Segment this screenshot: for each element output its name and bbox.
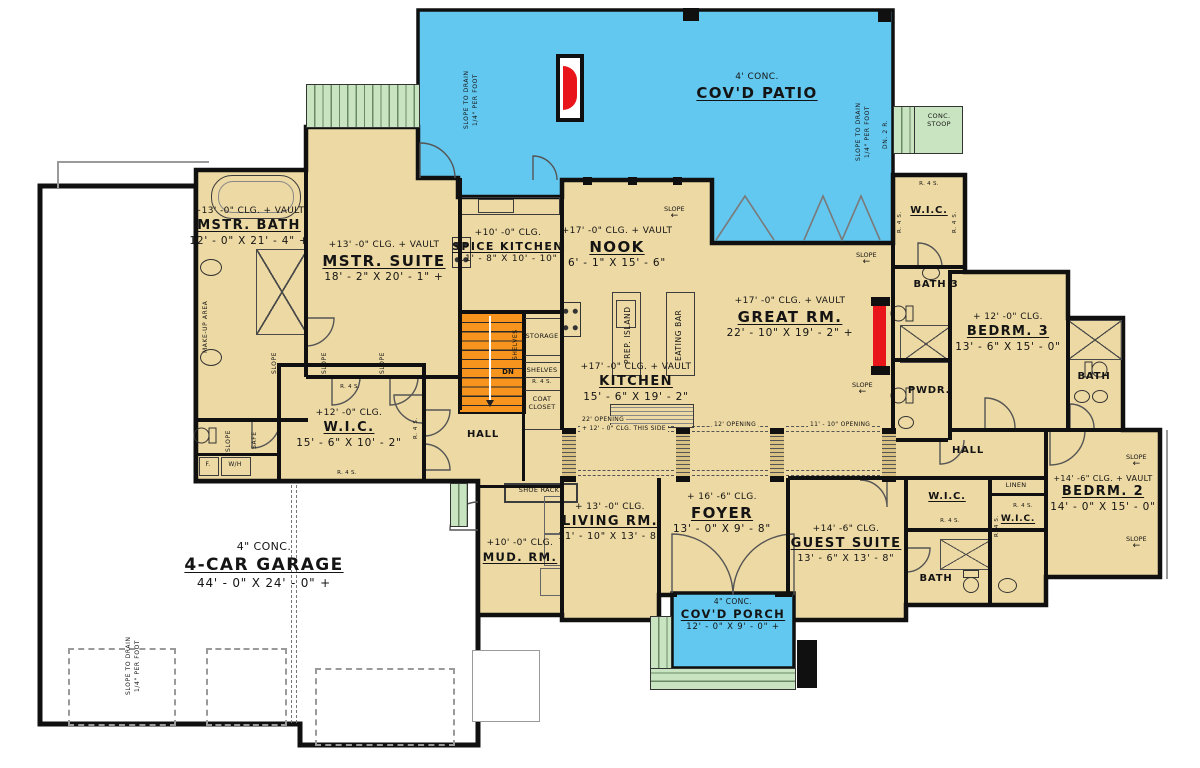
water-heater-label: W/H: [228, 461, 241, 469]
room-label-spice: +10' -0" CLG. SPICE KITCHEN 11' - 8" X 1…: [452, 228, 564, 266]
wall-guestwic-bottom: [906, 528, 1044, 532]
bathright-sink-2: [1092, 390, 1108, 403]
bedrm3-note: + 12' -0" CLG.: [955, 312, 1061, 324]
wic-master-note: +12' -0" CLG.: [296, 408, 402, 420]
great-rm-name: GREAT RM.: [727, 308, 854, 328]
hall-center-name: HALL: [467, 428, 499, 441]
slope-arrow-b2a: ←: [1126, 461, 1147, 468]
pwdr-name: PWDR.: [908, 384, 950, 397]
wall-bedrm3-west: [948, 272, 952, 440]
wall-wic-left: [277, 363, 281, 481]
closet-r4s-label: R. 4 S.: [532, 379, 552, 386]
column-post-2: [676, 428, 690, 482]
stairs-arrow-head: [486, 400, 494, 407]
linen-name: LINEN: [1006, 481, 1027, 489]
kitchen-note: +17' -0" CLG. + VAULT: [581, 362, 692, 374]
slope-drain-text-1: SLOPE TO DRAIN: [462, 60, 471, 140]
r4s-wic-tr-top: R. 4 S.: [919, 181, 939, 188]
furnace-label: F.: [206, 461, 211, 469]
room-label-pwdr: PWDR.: [908, 384, 950, 397]
slope-tick-1: SLOPE: [270, 350, 279, 376]
wall-bath-bottom: [196, 418, 308, 422]
r4s-wic-master-right: R. 4 S.: [412, 414, 420, 442]
safe-label: SAFE: [250, 424, 259, 456]
spice-sink: [478, 199, 514, 213]
garage-dims: 44' - 0" X 24' - 0" +: [184, 576, 343, 592]
slope-tick-3: SLOPE: [378, 350, 387, 376]
mstr-bath-dims: 12' - 0" X 21' - 4" +: [189, 235, 308, 249]
wall-mud-living: [560, 476, 564, 620]
living-rm-dims: 11' - 10" X 13' - 8": [558, 531, 662, 543]
wall-guestwic-east: [988, 478, 992, 605]
pwdr-sink: [898, 416, 914, 429]
wall-bedrm3-east: [1066, 272, 1070, 430]
nook-post-1: [583, 177, 592, 185]
patio-slope-note-right: SLOPE TO DRAIN 1/4" PER FOOT: [854, 92, 872, 172]
patio-name: COV'D PATIO: [696, 84, 817, 104]
wic-master-dims: 15' - 6" X 10' - 2": [296, 437, 402, 451]
foyer-name: FOYER: [673, 504, 771, 524]
guest-suite-note: +14' -6" CLG.: [791, 524, 902, 536]
nook-note: +17' -0" CLG. + VAULT: [562, 226, 673, 238]
wall-bathright-bottom: [1068, 428, 1123, 432]
per-foot-text-1: 1/4" PER FOOT: [471, 60, 480, 140]
garage-note: 4" CONC.: [184, 540, 343, 554]
room-label-guest-suite: +14' -6" CLG. GUEST SUITE 13' - 6" X 13'…: [791, 524, 902, 565]
column-post-3: [770, 428, 784, 482]
garage-door-2: [206, 648, 287, 726]
garage-side-stoop: [472, 650, 540, 722]
wall-suite-bath: [304, 170, 308, 377]
stoop-steps: [893, 106, 915, 154]
guest-suite-dims: 13' - 6" X 13' - 8": [791, 553, 902, 565]
greatrm-fireplace-cap-top: [871, 297, 890, 306]
stairs-dn-label: DN: [502, 368, 514, 377]
spice-dims: 11' - 8" X 10' - 10": [452, 254, 564, 266]
room-label-hall-center: HALL: [467, 428, 499, 441]
opening-note-clg: + 12' - 0" CLG. THIS SIDE: [580, 425, 668, 432]
guest-suite-name: GUEST SUITE: [791, 536, 902, 553]
r4s-wic-bedrm2: R. 4 S.: [1013, 503, 1033, 510]
living-rm-note: + 13' -0" CLG.: [558, 502, 662, 514]
room-label-bath-right: BATH: [1078, 370, 1111, 383]
patio-note: 4' CONC.: [696, 72, 817, 84]
guest-shower: [940, 539, 992, 570]
r4s-wic-tr-right: R. 4 S.: [951, 208, 959, 236]
wall-fwh-top: [196, 453, 278, 456]
bath-right-name: BATH: [1078, 370, 1111, 383]
eave-line-side: [57, 161, 59, 188]
floor-plan: 22' OPENING + 12' - 0" CLG. THIS SIDE 12…: [0, 0, 1200, 768]
garage-door-1: [68, 648, 176, 726]
nook-name: NOOK: [562, 238, 673, 258]
wall-wic-right: [422, 363, 426, 481]
per-foot-text-3: 1/4" PER FOOT: [133, 626, 142, 706]
makeup-area-text: MAKE-UP AREA: [201, 296, 210, 358]
mstr-bath-name: MSTR. BATH: [189, 218, 308, 235]
kitchen-dims: 15' - 6" X 19' - 2": [581, 391, 692, 405]
mstr-suite-dims: 18' - 2" X 20' - 1" +: [322, 271, 445, 285]
mud-rm-note: +10' -0" CLG.: [483, 538, 558, 550]
room-label-mstr-suite: +13' -0" CLG. + VAULT MSTR. SUITE 18' - …: [322, 240, 445, 285]
room-label-great-rm: +17' -0" CLG. + VAULT GREAT RM. 22' - 10…: [727, 296, 854, 341]
patio-post-1: [683, 8, 699, 21]
deck-steps-top: [306, 84, 420, 128]
hall-exterior-step: [450, 483, 468, 527]
wall-pwdr-bottom: [893, 438, 948, 442]
wall-kitchen-west: [560, 180, 564, 430]
room-label-nook: +17' -0" CLG. + VAULT NOOK 6' - 1" X 15'…: [562, 226, 673, 271]
per-foot-text-2: 1/4" PER FOOT: [863, 92, 872, 172]
bedrm3-dims: 13' - 6" X 15' - 0": [955, 341, 1061, 355]
stairs-rail: [489, 316, 491, 404]
shoe-rack-label: SHOE RACK: [519, 486, 559, 494]
greatrm-fireplace-cap-bottom: [871, 366, 890, 375]
porch-name: COV'D PORCH: [681, 607, 785, 622]
wall-bedrm3-bottom: [948, 428, 1068, 432]
bath3-name: BATH 3: [913, 278, 958, 291]
porch-dims: 12' - 0" X 9' - 0" +: [681, 622, 785, 633]
slope-tick-4: SLOPE: [224, 428, 233, 454]
wall-foyer-guest: [786, 478, 790, 595]
room-label-wic-bedrm2: W.I.C.: [1001, 514, 1035, 526]
wall-nook-east: [710, 180, 714, 243]
bathright-shower: [1068, 320, 1122, 360]
opening-note-12: 12' OPENING: [712, 421, 758, 428]
coat-closet-label: COAT CLOSET: [523, 396, 561, 412]
nook-dims: 6' - 1" X 15' - 6": [562, 257, 673, 271]
room-label-linen: LINEN: [1006, 481, 1027, 489]
porch-column: [797, 640, 817, 688]
wall-foyer-bottom-left: [657, 593, 677, 597]
spice-note: +10' -0" CLG.: [452, 228, 564, 240]
slope-tick-bedrm2-top: SLOPE ←: [1126, 454, 1147, 468]
wall-bath3-bottom: [893, 358, 948, 362]
room-label-porch: 4" CONC. COV'D PORCH 12' - 0" X 9' - 0" …: [681, 597, 785, 633]
wic-master-name: W.I.C.: [296, 420, 402, 437]
prep-island-label: PREP. ISLAND: [622, 300, 633, 370]
guest-sink: [998, 578, 1017, 593]
slope-drain-text-3: SLOPE TO DRAIN: [124, 626, 133, 706]
slope-tick-bedrm2-bottom: SLOPE ←: [1126, 536, 1147, 550]
garage-slope-note: SLOPE TO DRAIN 1/4" PER FOOT: [124, 626, 142, 706]
r4s-guest-wic: R. 4 S.: [940, 518, 960, 525]
stoop-name: CONC. STOOP: [918, 112, 960, 129]
r4s-wic-master-bottom: R. 4 S.: [337, 470, 357, 477]
patio-slope-note-left: SLOPE TO DRAIN 1/4" PER FOOT: [462, 60, 480, 140]
room-label-bath3: BATH 3: [913, 278, 958, 291]
wic-bedrm2-name: W.I.C.: [1001, 514, 1035, 526]
great-rm-note: +17' -0" CLG. + VAULT: [727, 296, 854, 308]
greatrm-fireplace-fire: [873, 306, 886, 366]
master-toilet-icon: [194, 428, 217, 444]
wall-bedrm2-west: [1044, 430, 1048, 577]
nook-post-3: [673, 177, 682, 185]
room-label-bedrm3: + 12' -0" CLG. BEDRM. 3 13' - 6" X 15' -…: [955, 312, 1061, 354]
room-label-wic-master: +12' -0" CLG. W.I.C. 15' - 6" X 10' - 2": [296, 408, 402, 450]
hall-right-name: HALL: [952, 444, 984, 457]
eave-line-top: [57, 161, 209, 163]
mstr-suite-name: MSTR. SUITE: [322, 252, 445, 272]
slope-tick-pwdr: SLOPE ←: [852, 382, 873, 396]
storage-label: STORAGE: [525, 332, 558, 340]
master-sink-1: [200, 259, 222, 276]
bedrm2-dims: 14' - 0" X 15' - 0": [1050, 501, 1156, 515]
room-label-stoop: CONC. STOOP: [918, 112, 960, 129]
slope-arrow-pw: ←: [852, 389, 873, 396]
wall-guest-east: [904, 476, 908, 622]
wall-suite-right: [458, 178, 462, 410]
room-label-bedrm2: +14' -6" CLG. + VAULT BEDRM. 2 14' - 0" …: [1050, 474, 1156, 515]
room-label-guest-wic: W.I.C.: [928, 490, 965, 503]
wall-linen-wic2: [988, 493, 1044, 496]
wall-hall-right-bottom: [893, 476, 1044, 480]
room-label-patio: 4' CONC. COV'D PATIO: [696, 72, 817, 103]
great-rm-dims: 22' - 10" X 19' - 2" +: [727, 327, 854, 341]
mud-rm-name: MUD. RM.: [483, 550, 558, 565]
garage-name: 4-CAR GARAGE: [184, 554, 343, 576]
slope-arrow-n: ←: [664, 213, 685, 220]
r4s-wic-bedrm2-left: R. 4 S.: [993, 512, 1001, 540]
room-label-foyer: + 16' -6" CLG. FOYER 13' - 0" X 9' - 8": [673, 492, 771, 537]
r4s-wic-tr-left: R. 4 S.: [896, 208, 904, 236]
wall-wic-tr-bottom: [893, 265, 965, 269]
bedrm2-name: BEDRM. 2: [1050, 484, 1156, 501]
slope-tick-nook: SLOPE ←: [664, 206, 685, 220]
shelves-vertical-label: SHELVES: [511, 322, 520, 368]
room-label-hall-right: HALL: [952, 444, 984, 457]
mstr-suite-note: +13' -0" CLG. + VAULT: [322, 240, 445, 252]
bedrm3-name: BEDRM. 3: [955, 324, 1061, 341]
column-post-1: [562, 428, 576, 482]
patio-post-2: [878, 10, 891, 22]
kitchen-name: KITCHEN: [581, 374, 692, 391]
opening-dash-2a: [578, 470, 674, 476]
garage-door-3: [315, 668, 455, 746]
mstr-bath-note: +13' -0" CLG. + VAULT: [189, 206, 308, 218]
wall-wic-top: [277, 363, 424, 367]
shelves-label: SHELVES: [527, 366, 558, 374]
opening-note-11-10: 11' - 10" OPENING: [808, 421, 872, 428]
guest-bath-name: BATH: [920, 572, 953, 585]
foyer-note: + 16' -6" CLG.: [673, 492, 771, 504]
room-label-guest-bath: BATH: [920, 572, 953, 585]
bathright-sink-1: [1074, 390, 1090, 403]
guest-wic-name: W.I.C.: [928, 490, 965, 503]
room-label-mud-rm: +10' -0" CLG. MUD. RM.: [483, 538, 558, 565]
column-post-4: [882, 428, 896, 482]
slope-drain-text-2: SLOPE TO DRAIN: [854, 92, 863, 172]
master-shower: [256, 249, 308, 335]
opening-note-22: 22' OPENING: [580, 416, 626, 423]
nook-post-2: [628, 177, 637, 185]
room-label-living-rm: + 13' -0" CLG. LIVING RM. 11' - 10" X 13…: [558, 502, 662, 543]
room-label-garage: 4" CONC. 4-CAR GARAGE 44' - 0" X 24' - 0…: [184, 540, 343, 592]
room-label-kitchen: +17' -0" CLG. + VAULT KITCHEN 15' - 6" X…: [581, 362, 692, 404]
slope-arrow-b3: ←: [856, 259, 877, 266]
living-rm-name: LIVING RM.: [558, 514, 662, 531]
dn-2r-note: DN. 2 R.: [881, 116, 890, 152]
makeup-area-label: MAKE-UP AREA: [201, 296, 210, 358]
slope-arrow-b2b: ←: [1126, 543, 1147, 550]
spice-name: SPICE KITCHEN: [452, 240, 564, 254]
slope-tick-bath3: SLOPE ←: [856, 252, 877, 266]
guest-toilet-icon: [963, 570, 979, 593]
porch-note: 4" CONC.: [681, 597, 785, 607]
slope-tick-2: SLOPE: [320, 350, 329, 376]
wall-greatrm-east: [891, 243, 895, 440]
r4s-wic-master-top: R. 4 S.: [340, 384, 360, 391]
room-label-mstr-bath: +13' -0" CLG. + VAULT MSTR. BATH 12' - 0…: [189, 206, 308, 248]
opening-dash-2b: [692, 470, 768, 476]
eave-line-right: [1166, 430, 1168, 579]
wall-spice-bottom: [458, 310, 562, 314]
porch-step-bottom: [650, 668, 796, 690]
wall-bedrm3-top: [948, 270, 1068, 274]
wic-top-right-name: W.I.C.: [910, 204, 947, 217]
bedrm2-note: +14' -6" CLG. + VAULT: [1050, 474, 1156, 484]
eating-bar-label: EATING BAR: [673, 300, 684, 370]
garage-ridge-line: [291, 485, 297, 723]
foyer-dims: 13' - 0" X 9' - 8": [673, 523, 771, 537]
room-label-wic-top-right: W.I.C.: [910, 204, 947, 217]
